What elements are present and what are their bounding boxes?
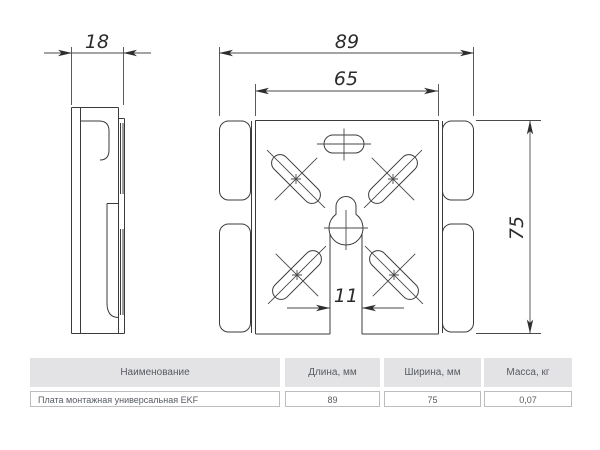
header-name: Наименование [30,358,280,387]
side-view [72,108,125,334]
dimension-height: 75 [476,121,541,334]
technical-drawing: 18 [0,0,600,352]
header-length: Длина, мм [285,358,380,387]
dim-label-inner-width: 65 [334,68,358,90]
dimension-side-width: 18 [44,31,151,105]
header-width: Ширина, мм [384,358,481,387]
dim-label-height: 75 [506,216,528,240]
table-row: Плата монтажная универсальная EKF 89 75 … [30,391,572,407]
dim-label-slot-width: 11 [334,285,358,307]
cell-length: 89 [285,391,380,407]
dim-label-overall-width: 89 [335,31,359,53]
cell-product-name: Плата монтажная универсальная EKF [30,391,280,407]
spec-table: Наименование Длина, мм Ширина, мм Масса,… [30,358,572,407]
cell-mass: 0,07 [484,391,572,407]
header-mass: Масса, кг [484,358,572,387]
dimension-inner-width: 65 [255,68,439,116]
dimension-slot-width: 11 [287,285,404,311]
keyhole-slot [324,197,368,251]
dim-label-side-width: 18 [85,31,109,53]
ear-bottom-right [443,224,474,332]
spec-table-header-row: Наименование Длина, мм Ширина, мм Масса,… [30,358,572,387]
ear-top-right [443,121,474,200]
top-oblong-slot [317,129,371,161]
ear-top-left [220,121,251,200]
diagonal-slot-bottom-left [247,225,347,325]
cell-width: 75 [384,391,481,407]
mounting-plate-drawing-page: 18 [0,0,600,450]
ear-bottom-left [220,224,251,332]
